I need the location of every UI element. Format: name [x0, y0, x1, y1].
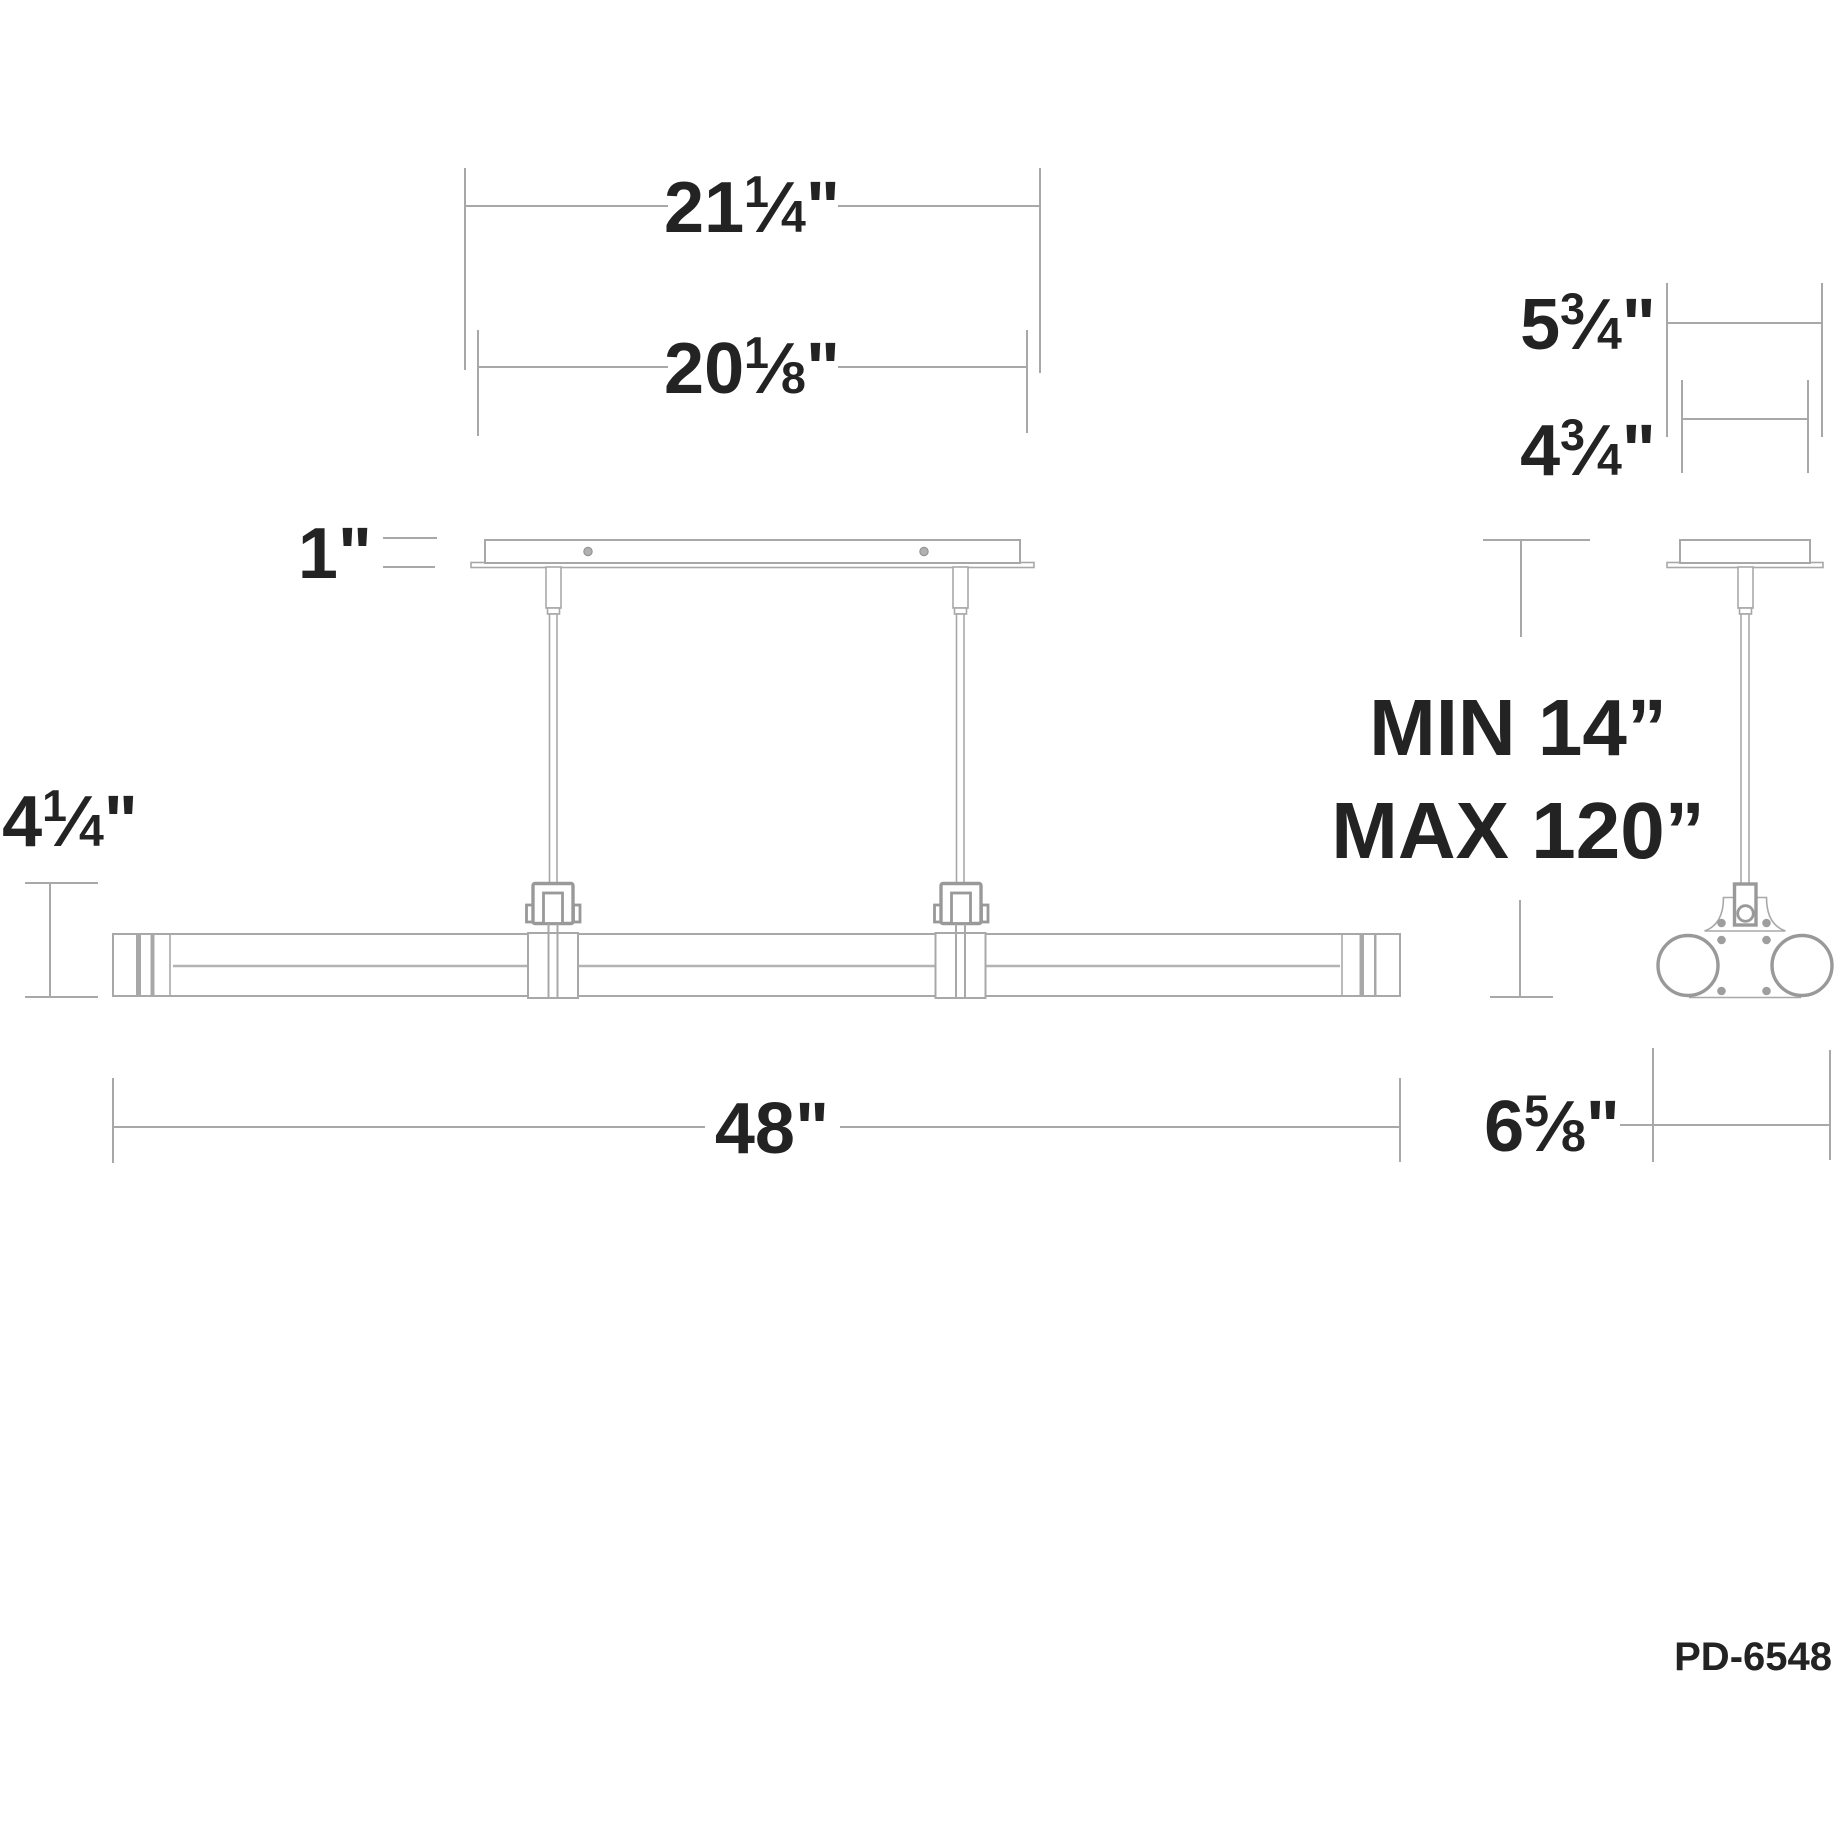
dim-side-canopy-width: 43⁄4": [1520, 380, 1808, 491]
dim-label-fixture-height: 41⁄4": [2, 782, 138, 862]
dim-label-side-flange-width: 53⁄4": [1520, 285, 1656, 365]
side-tube-circle-right: [1772, 936, 1832, 996]
screw-dot-icon: [1717, 987, 1726, 996]
stem-collar: [548, 608, 560, 614]
stem-fitting: [546, 567, 561, 608]
canopy-screw-icon: [584, 547, 592, 555]
dim-label-side-body-width: 65⁄8": [1484, 1087, 1620, 1167]
canopy-screw-icon: [920, 547, 928, 555]
side-tube-circle-left: [1658, 936, 1718, 996]
front-canopy: [485, 540, 1020, 563]
screw-dot-icon: [1762, 919, 1771, 928]
front-view: [113, 540, 1400, 998]
tube-saddle-block: [528, 933, 578, 998]
dim-label-suspension-max: MAX 120”: [1331, 786, 1704, 875]
front-right-clamp: [935, 884, 989, 924]
screw-dot-icon: [1762, 987, 1771, 996]
stem-fitting: [953, 567, 968, 608]
front-left-clamp: [527, 884, 581, 924]
cap-ring: [151, 935, 155, 995]
stem-fitting: [1738, 567, 1753, 608]
dim-fixture-length: 48": [113, 1078, 1400, 1169]
dim-label-canopy-height: 1": [298, 514, 372, 594]
dim-canopy-body-width: 201⁄8": [478, 329, 1027, 436]
cap-ring: [1374, 935, 1377, 995]
side-canopy: [1680, 540, 1810, 563]
screw-dot-icon: [1717, 936, 1726, 945]
stem-collar: [1740, 608, 1752, 614]
product-code: PD-6548: [1674, 1635, 1832, 1679]
screw-dot-icon: [1762, 936, 1771, 945]
dim-suspension-range: MIN 14” MAX 120”: [1331, 540, 1704, 997]
cap-ring: [1360, 935, 1365, 995]
dim-label-fixture-length: 48": [715, 1089, 829, 1169]
dim-canopy-height: 1": [298, 514, 437, 594]
stem-rod: [957, 614, 965, 884]
stem-rod: [1741, 614, 1749, 884]
dimension-drawing: 211⁄4" 201⁄8" 1" 41⁄4" 48": [0, 0, 1840, 1840]
side-view: [1658, 540, 1832, 998]
tube-saddle-block: [936, 933, 986, 998]
stem-rod: [550, 614, 558, 884]
dim-label-canopy-overall-width: 211⁄4": [664, 168, 840, 248]
stem-collar: [955, 608, 967, 614]
clamp-slot: [544, 893, 563, 924]
pivot-circle: [1738, 906, 1754, 922]
screw-dot-icon: [1717, 919, 1726, 928]
front-left-stem: [546, 567, 561, 884]
dim-label-suspension-min: MIN 14”: [1369, 683, 1667, 772]
dim-label-side-canopy-width: 43⁄4": [1520, 411, 1656, 491]
dim-side-body-width: 65⁄8": [1484, 1048, 1830, 1167]
front-right-stem: [953, 567, 968, 884]
clamp-slot: [952, 893, 971, 924]
cap-ring: [136, 935, 141, 995]
dim-label-canopy-body-width: 201⁄8": [664, 329, 840, 409]
pendant-dimension-diagram: 211⁄4" 201⁄8" 1" 41⁄4" 48": [0, 0, 1840, 1840]
